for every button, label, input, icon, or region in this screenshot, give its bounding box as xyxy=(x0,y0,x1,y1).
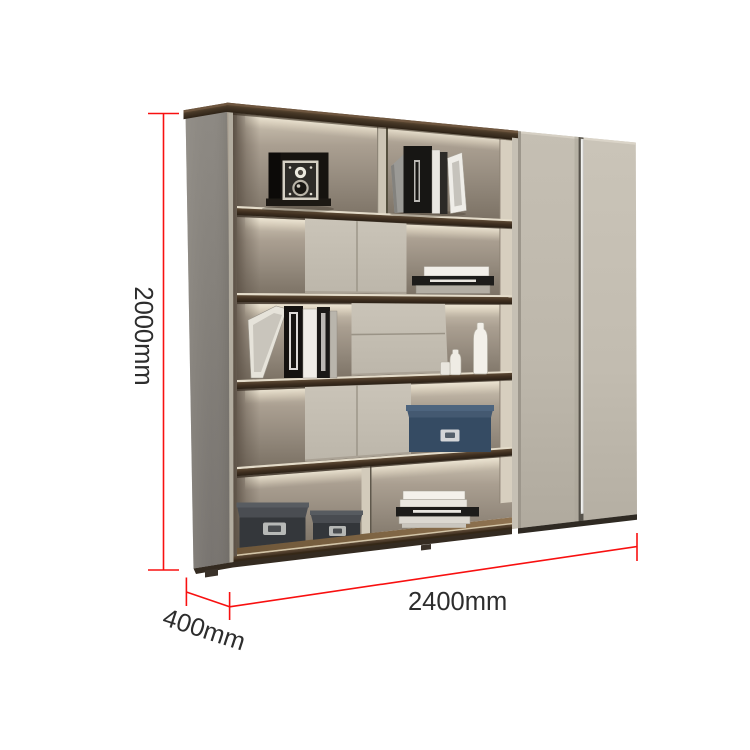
svg-text:2000mm: 2000mm xyxy=(129,286,157,385)
svg-text:2400mm: 2400mm xyxy=(408,588,507,616)
